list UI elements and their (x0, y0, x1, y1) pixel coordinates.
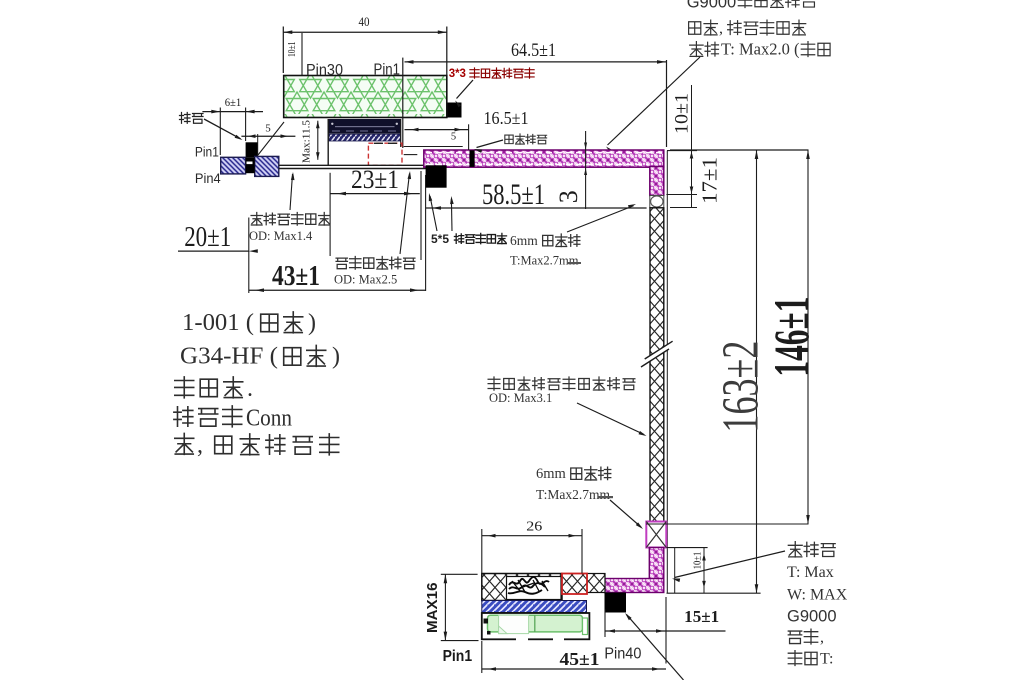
svg-text:17±1: 17±1 (698, 157, 722, 204)
svg-text:Pin1: Pin1 (374, 62, 401, 79)
svg-text:.: . (247, 376, 253, 402)
svg-text:W: MAX: W: MAX (787, 587, 848, 604)
svg-text:20±1: 20±1 (184, 222, 231, 253)
svg-text:58.5±1: 58.5±1 (482, 178, 545, 211)
svg-text:45±1: 45±1 (560, 649, 600, 669)
svg-text:T:: T: (820, 651, 833, 668)
svg-text:MAX16: MAX16 (425, 583, 441, 634)
svg-text:T: Max2.0 (: T: Max2.0 ( (721, 40, 799, 59)
svg-text:Conn: Conn (246, 406, 292, 432)
svg-text:OD: Max1.4: OD: Max1.4 (249, 229, 313, 243)
svg-text:T: Max: T: Max (787, 564, 834, 581)
svg-text:,: , (820, 629, 824, 646)
svg-text:Pin4: Pin4 (195, 171, 221, 186)
svg-text:6mm: 6mm (510, 233, 538, 248)
svg-text:Max:11.5: Max:11.5 (301, 119, 313, 163)
svg-text:Pin1: Pin1 (195, 144, 219, 159)
svg-text:5: 5 (265, 123, 271, 135)
svg-text:5: 5 (451, 132, 456, 143)
svg-text:G9000: G9000 (687, 0, 737, 12)
svg-text:T:Max2.7mm: T:Max2.7mm (510, 254, 579, 268)
svg-text:): ) (332, 344, 340, 370)
svg-text:163±2: 163±2 (713, 341, 770, 433)
svg-text:): ) (308, 310, 316, 336)
svg-text:146±1: 146±1 (763, 297, 819, 377)
svg-text:6±1: 6±1 (225, 95, 242, 109)
svg-text:OD: Max3.1: OD: Max3.1 (489, 391, 552, 405)
svg-text:Pin30: Pin30 (306, 62, 343, 79)
svg-text:G9000: G9000 (787, 608, 837, 626)
svg-text:5*5: 5*5 (431, 232, 449, 246)
svg-text:T:Max2.7mm: T:Max2.7mm (536, 487, 610, 502)
svg-text:G34-HF (: G34-HF ( (180, 344, 278, 370)
svg-text:10±1: 10±1 (287, 42, 298, 58)
svg-text:6mm: 6mm (536, 466, 567, 482)
svg-text:3*3: 3*3 (449, 68, 466, 80)
svg-text:16.5±1: 16.5±1 (484, 108, 529, 128)
svg-text:Pin40: Pin40 (604, 645, 641, 662)
svg-text:10±1: 10±1 (693, 552, 704, 570)
svg-text:43±1: 43±1 (272, 261, 320, 292)
svg-text:10±1: 10±1 (672, 93, 693, 134)
svg-text:Pin1: Pin1 (443, 648, 473, 665)
svg-text:3: 3 (554, 190, 583, 203)
svg-text:,: , (719, 20, 723, 37)
svg-text:OD: Max2.5: OD: Max2.5 (334, 273, 397, 287)
svg-text:15±1: 15±1 (684, 607, 719, 626)
svg-text:1-001 (: 1-001 ( (182, 310, 254, 336)
svg-text:,: , (197, 433, 203, 459)
svg-text:26: 26 (526, 520, 542, 535)
svg-text:64.5±1: 64.5±1 (511, 40, 556, 61)
svg-text:23±1: 23±1 (351, 165, 399, 194)
svg-text:40: 40 (359, 15, 370, 29)
